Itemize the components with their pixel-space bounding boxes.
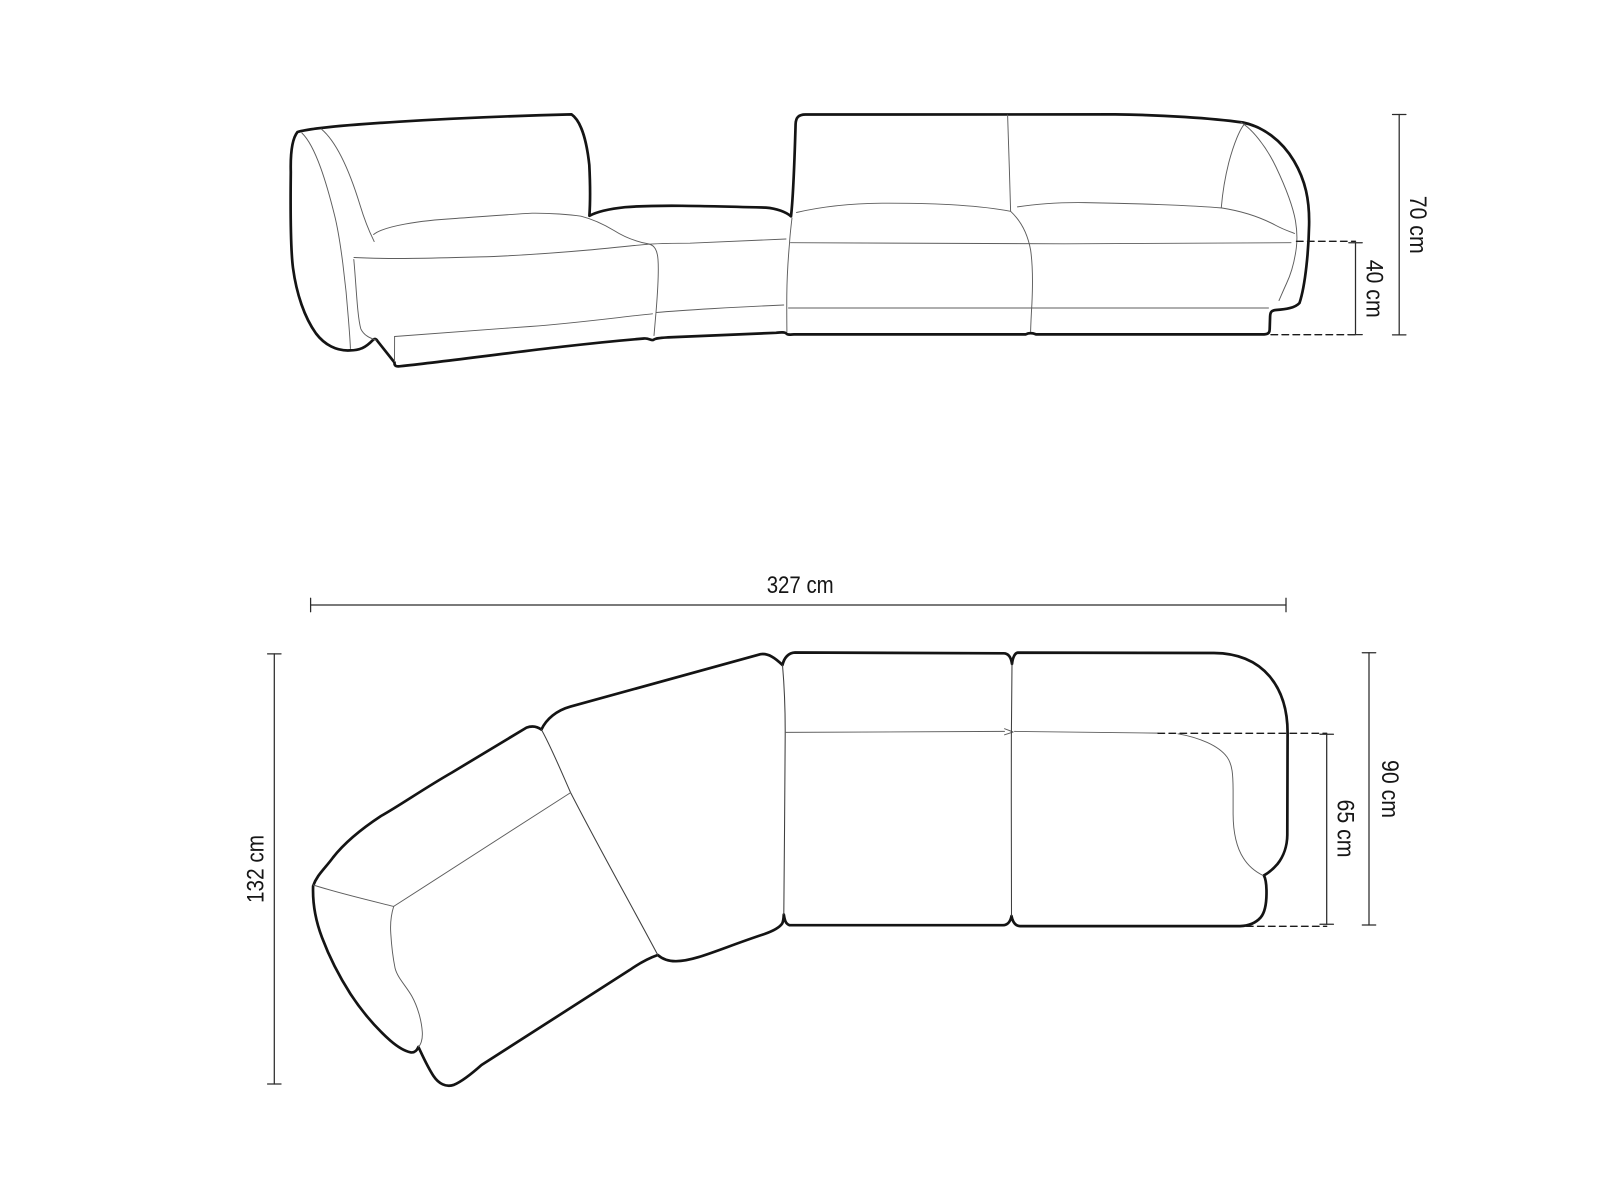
svg-text:90 cm: 90 cm (1376, 760, 1403, 818)
svg-text:327 cm: 327 cm (767, 572, 834, 599)
svg-text:132 cm: 132 cm (242, 835, 269, 903)
svg-text:40 cm: 40 cm (1361, 260, 1388, 318)
svg-text:70 cm: 70 cm (1404, 196, 1431, 254)
svg-text:65 cm: 65 cm (1332, 800, 1359, 858)
